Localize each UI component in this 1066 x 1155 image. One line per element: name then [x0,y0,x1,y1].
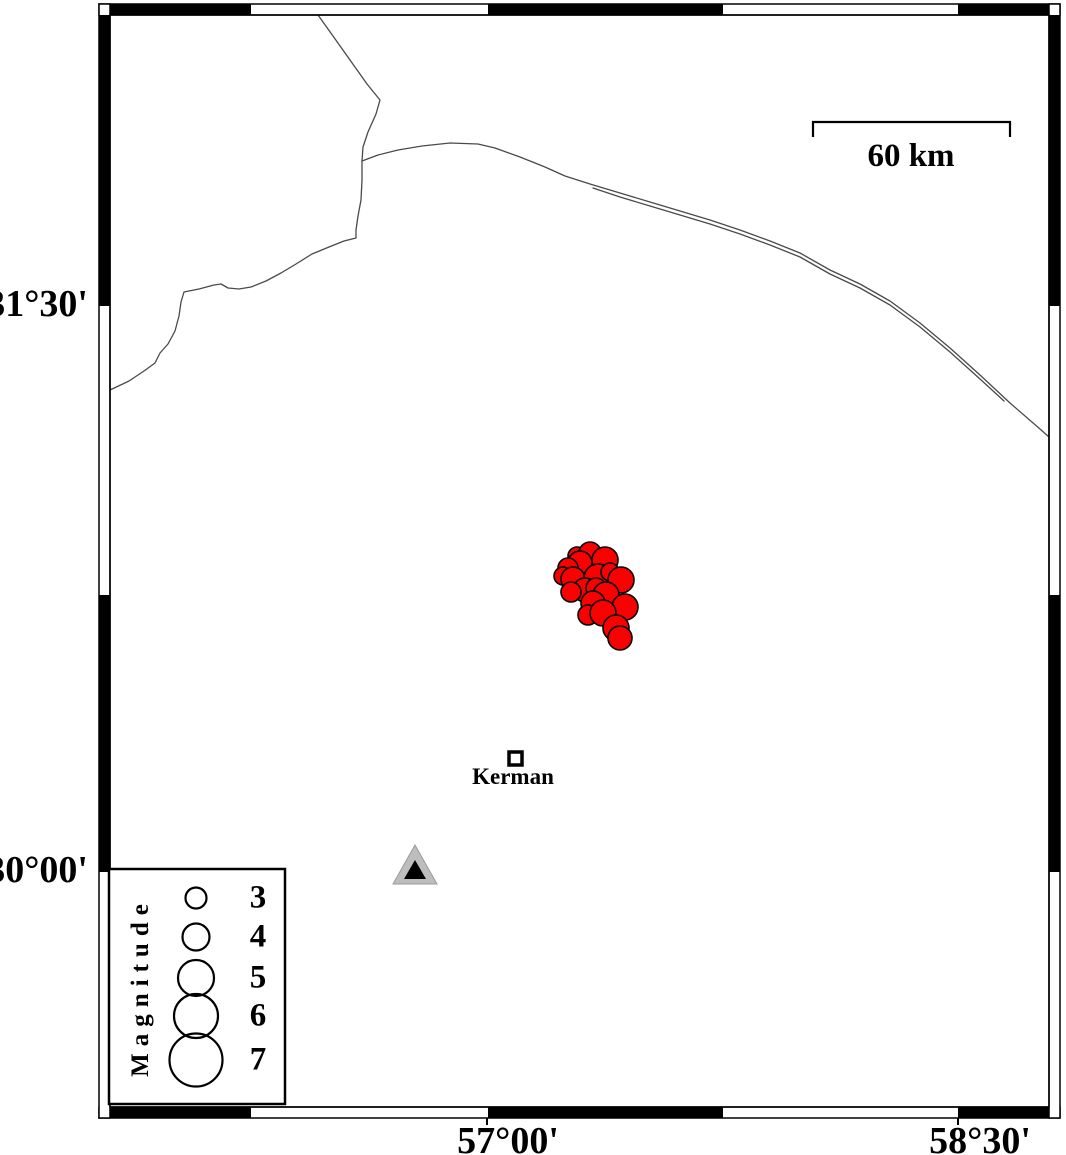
frame-black-segment-left [99,595,110,872]
road-north [318,15,380,161]
frame-black-segment-bottom [958,1107,1049,1118]
city-label-kerman: Kerman [472,764,554,790]
legend-label-mag-5: 5 [250,960,267,997]
frame-black-segment-top [958,4,1049,15]
frame-black-segment-right [1049,595,1060,872]
earthquake-marker [561,582,581,602]
frame-black-segment-left [99,15,110,306]
earthquake-marker [608,626,632,650]
frame-black-segment-bottom [488,1107,723,1118]
legend-label-mag-7: 7 [250,1042,267,1079]
frame-black-segment-right [1049,15,1060,306]
lon-label-57-00: 57°00' [457,1119,559,1155]
frame-black-segment-top [488,4,723,15]
road-southwest [110,161,362,390]
scale-bar [813,122,1010,137]
legend-label-mag-3: 3 [250,880,267,917]
lat-label-31-30: 31°30' [0,282,88,326]
legend-label-mag-4: 4 [250,919,267,956]
legend-label-mag-6: 6 [250,998,267,1035]
earthquake-map-canvas: 31°30' 30°00' 57°00' 58°30' 60 km Kerman… [0,0,1066,1155]
road-east-parallel [593,188,1004,401]
frame-black-segment-bottom [110,1107,251,1118]
lon-label-58-30: 58°30' [929,1119,1031,1155]
scale-bar-label: 60 km [867,138,954,175]
legend-title: Magnitude [127,897,155,1077]
frame-black-segment-top [110,4,251,15]
road-east [362,143,1049,437]
lat-label-30-00: 30°00' [0,848,88,892]
